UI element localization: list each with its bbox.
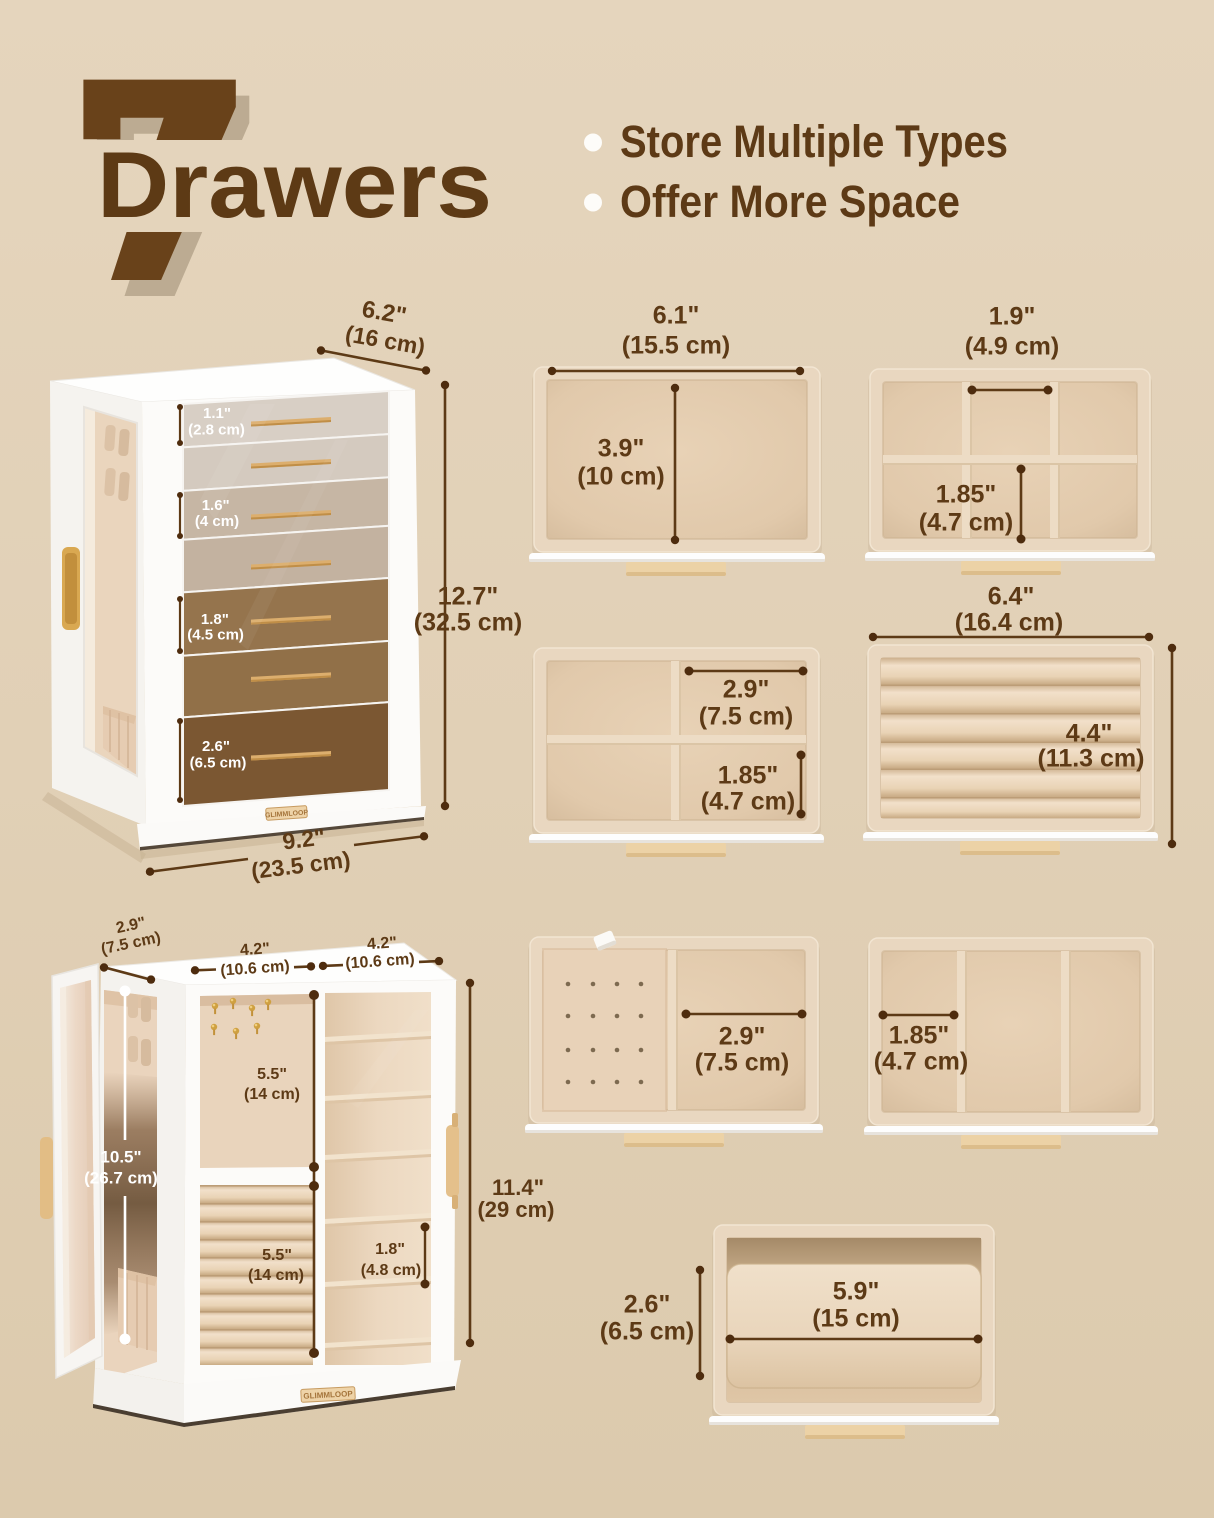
svg-text:(14 cm): (14 cm) <box>244 1086 300 1103</box>
svg-text:6.4": 6.4" <box>988 583 1035 611</box>
svg-text:10.5": 10.5" <box>100 1147 141 1166</box>
svg-text:1.8": 1.8" <box>201 611 229 628</box>
svg-text:(10 cm): (10 cm) <box>577 463 665 491</box>
svg-text:Offer More Space: Offer More Space <box>620 176 960 227</box>
svg-text:(4.7 cm): (4.7 cm) <box>919 509 1013 537</box>
svg-text:2.6": 2.6" <box>624 1291 671 1319</box>
svg-text:(7.5 cm): (7.5 cm) <box>699 703 793 731</box>
svg-text:1.8": 1.8" <box>375 1241 405 1258</box>
svg-text:1.85": 1.85" <box>718 762 779 790</box>
svg-text:(29 cm): (29 cm) <box>477 1197 554 1222</box>
svg-text:6.1": 6.1" <box>653 302 700 330</box>
svg-text:4.4": 4.4" <box>1066 720 1113 748</box>
svg-text:(32.5 cm): (32.5 cm) <box>414 609 522 637</box>
svg-text:(15 cm): (15 cm) <box>812 1305 900 1333</box>
svg-text:1.85": 1.85" <box>936 481 997 509</box>
svg-text:(4.8 cm): (4.8 cm) <box>361 1262 421 1279</box>
svg-text:3.9": 3.9" <box>598 435 645 463</box>
svg-text:4.2": 4.2" <box>240 940 271 959</box>
svg-text:12.7": 12.7" <box>438 583 499 611</box>
svg-text:(16.4 cm): (16.4 cm) <box>955 609 1063 637</box>
svg-text:5.5": 5.5" <box>262 1247 292 1264</box>
svg-text:(2.8 cm): (2.8 cm) <box>188 421 245 438</box>
svg-text:(6.5 cm): (6.5 cm) <box>600 1318 694 1346</box>
svg-text:1.1": 1.1" <box>203 405 231 422</box>
svg-text:4.2": 4.2" <box>367 934 398 953</box>
svg-text:(7.5 cm): (7.5 cm) <box>695 1049 789 1077</box>
svg-text:(4.7 cm): (4.7 cm) <box>701 788 795 816</box>
svg-text:1.85": 1.85" <box>889 1022 950 1050</box>
svg-text:(4 cm): (4 cm) <box>195 513 239 530</box>
svg-text:(4.9 cm): (4.9 cm) <box>965 333 1059 361</box>
svg-text:1.6": 1.6" <box>202 497 230 514</box>
svg-text:(4.5 cm): (4.5 cm) <box>187 626 244 643</box>
svg-text:Store Multiple Types: Store Multiple Types <box>620 116 1008 167</box>
svg-text:Drawers: Drawers <box>97 132 492 237</box>
svg-text:(11.3 cm): (11.3 cm) <box>1037 745 1144 773</box>
svg-text:(26.7 cm): (26.7 cm) <box>84 1168 158 1187</box>
svg-text:2.9": 2.9" <box>719 1023 766 1051</box>
svg-text:(6.5 cm): (6.5 cm) <box>190 754 247 771</box>
svg-text:2.9": 2.9" <box>723 676 770 704</box>
svg-text:(4.7 cm): (4.7 cm) <box>874 1048 968 1076</box>
svg-text:(14 cm): (14 cm) <box>248 1267 304 1284</box>
svg-text:5.9": 5.9" <box>833 1278 880 1306</box>
svg-text:1.9": 1.9" <box>989 303 1036 331</box>
svg-text:2.6": 2.6" <box>202 738 230 755</box>
svg-text:5.5": 5.5" <box>257 1066 287 1083</box>
svg-text:(15.5 cm): (15.5 cm) <box>622 332 730 360</box>
